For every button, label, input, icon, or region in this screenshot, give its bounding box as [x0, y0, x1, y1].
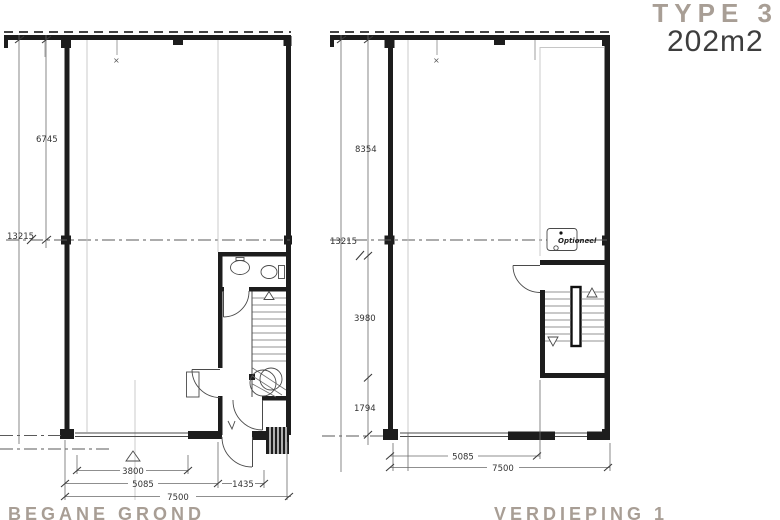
- stair-down-arrow: [548, 337, 558, 346]
- plan-title-ground: BEGANE GROND: [8, 505, 205, 520]
- grid-x-marker: ×: [433, 56, 440, 65]
- dim-total-width-first: 7500: [492, 464, 514, 474]
- grid-lines: ×: [0, 40, 291, 500]
- hall-door: [228, 400, 263, 430]
- columns: [60, 36, 292, 439]
- louvre-panel: [266, 427, 289, 454]
- stair-up-arrow: [264, 292, 274, 300]
- optional-fixture: Optioneel: [547, 229, 597, 251]
- floorplan-sheet: ×: [0, 0, 780, 520]
- plans-drawing: ×: [0, 0, 780, 520]
- entry-marker: [126, 451, 140, 461]
- bathroom-door: [224, 291, 250, 317]
- stair-door: [513, 266, 540, 293]
- bottom-facade-ground: [75, 427, 289, 467]
- dim-total-height-first: 13215: [330, 237, 357, 247]
- outer-walls: [4, 35, 291, 435]
- bottom-facade-first: [400, 429, 610, 440]
- dim-room-width-ground: 5085: [132, 480, 154, 490]
- entrance-door: [222, 437, 252, 467]
- area-label: 202m2: [667, 25, 764, 58]
- bathroom: [231, 258, 285, 279]
- type-label: TYPE 3: [652, 0, 778, 26]
- dim-room-width-first: 5085: [452, 453, 474, 463]
- stair-up-arrow: [587, 288, 597, 297]
- stairs-first: [545, 287, 604, 346]
- grid-x-marker: ×: [113, 56, 120, 65]
- floor-plan-ground: ×: [0, 32, 293, 503]
- toilet-icon: [261, 266, 277, 279]
- dim-window-width: 3800: [122, 467, 144, 477]
- floor-plan-first: × Optioneel: [322, 32, 612, 474]
- plan-title-first: VERDIEPING 1: [494, 505, 668, 520]
- sink-icon: [231, 261, 250, 275]
- dimensions-first: 8354 3980 1794 13215 5085 7500: [330, 35, 612, 474]
- dim-mid-height: 3980: [354, 314, 376, 324]
- room-door: [187, 370, 221, 398]
- core-walls: [218, 252, 291, 435]
- optional-label: Optioneel: [558, 237, 597, 245]
- dim-lower-height: 1794: [354, 404, 376, 414]
- dim-entry-width: 1435: [232, 480, 254, 490]
- dim-total-width-ground: 7500: [167, 493, 189, 503]
- stairs-ground: [249, 292, 286, 398]
- dim-upper-height-first: 8354: [355, 145, 377, 155]
- dim-total-height-ground: 13215: [7, 232, 34, 242]
- dim-upper-height-ground: 6745: [36, 135, 58, 145]
